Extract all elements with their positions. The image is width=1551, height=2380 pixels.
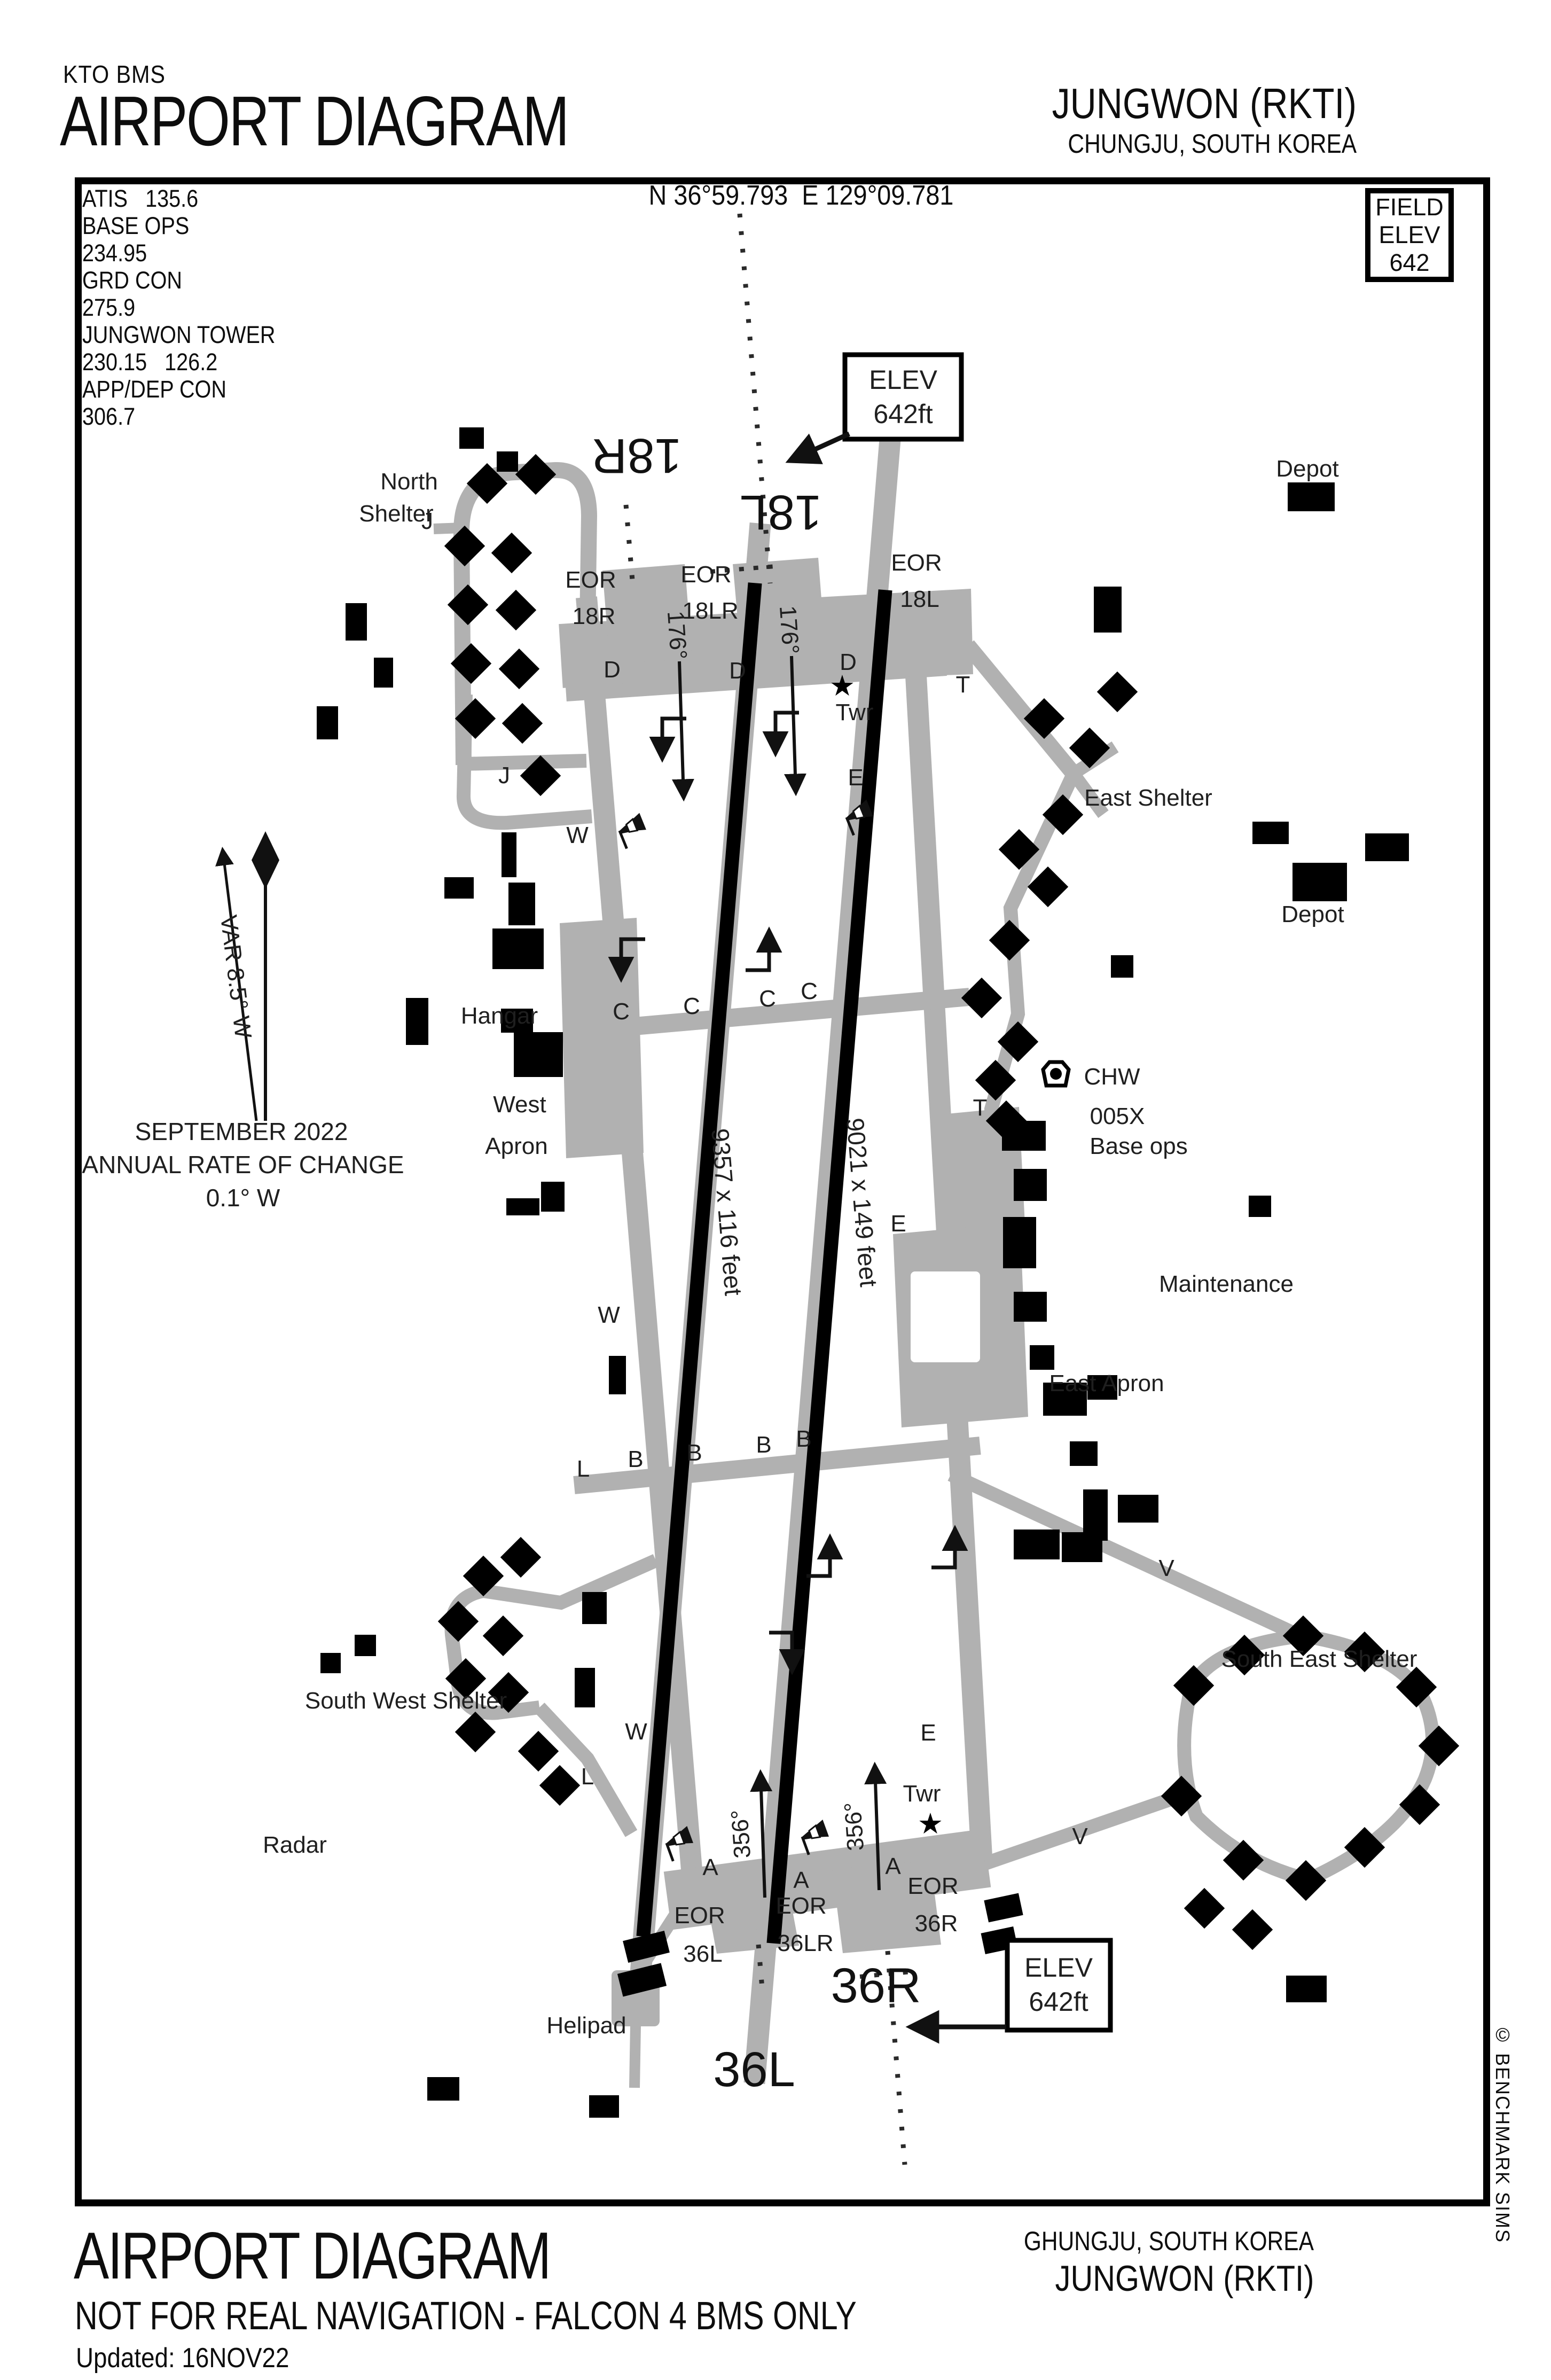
eor-18l-id: 18L xyxy=(900,586,939,612)
hangar-label: Hangar xyxy=(461,1003,538,1029)
west-apron-label: Apron xyxy=(485,1133,547,1159)
maintenance-label: Maintenance xyxy=(1159,1271,1294,1297)
taxiway-l: L xyxy=(577,1456,590,1482)
east-apron-label: East Apron xyxy=(1049,1370,1164,1396)
west-apron-label: West xyxy=(493,1091,546,1118)
taxiway-w: W xyxy=(625,1719,647,1745)
tower-star-icon: ★ xyxy=(829,670,855,702)
taxiway-w: W xyxy=(598,1302,620,1328)
eor-18lr: EOR xyxy=(680,561,731,588)
taxiway-c: C xyxy=(683,993,700,1019)
taxiway-b: B xyxy=(686,1440,702,1466)
elev-callout-line: ELEV xyxy=(1024,1953,1093,1983)
taxiway-e: E xyxy=(848,764,863,791)
south-east-shelter-label: South East Shelter xyxy=(1221,1646,1417,1672)
copyright-credit: © BENCHMARK SIMS xyxy=(1491,2024,1514,2243)
taxiway-e: E xyxy=(890,1211,906,1237)
runway-dimensions-east: 9021 x 149 feet xyxy=(841,1117,883,1289)
heading-356-east: 356° xyxy=(840,1801,869,1852)
runway-label-36l: 36L xyxy=(713,2042,795,2097)
tower-star-icon: ★ xyxy=(918,1808,943,1840)
taxiway-a: A xyxy=(885,1853,901,1879)
taxiway-v: V xyxy=(1072,1823,1088,1850)
footer-updated: Updated: 16NOV22 xyxy=(76,2342,289,2374)
taxiway-l: L xyxy=(581,1763,594,1790)
east-shelter-label: East Shelter xyxy=(1084,785,1212,811)
airport-map: ELEV 642ft ELEV 642ft VAR 8.5° W SEPTEMB… xyxy=(0,0,1551,2380)
variation-date: SEPTEMBER 2022 xyxy=(135,1118,348,1145)
windsock-icon xyxy=(799,1820,832,1855)
runway-label-18r: 18R xyxy=(592,428,682,483)
variation-label: VAR 8.5° W xyxy=(215,914,256,1040)
tower-label-south: Twr xyxy=(903,1781,941,1807)
eor-18r: EOR xyxy=(565,567,616,593)
eor-36r: EOR xyxy=(907,1873,958,1899)
elev-callout-line: 642ft xyxy=(873,399,933,429)
variation-rate: 0.1° W xyxy=(206,1184,280,1212)
tower-label-north: Twr xyxy=(836,699,874,725)
footer-airport-location: GHUNGJU, SOUTH KOREA xyxy=(1024,2226,1314,2257)
elev-callout-line: 642ft xyxy=(1029,1987,1088,2017)
heading-356-west: 356° xyxy=(726,1809,756,1859)
radar-label: Radar xyxy=(263,1832,327,1858)
eor-36l: EOR xyxy=(674,1902,725,1929)
magnetic-north-arrowhead xyxy=(252,831,279,889)
taxiway-w: W xyxy=(566,822,589,848)
tacan-id-label: CHW xyxy=(1084,1064,1140,1090)
depot-label-north: Depot xyxy=(1276,456,1338,482)
base-ops-label: Base ops xyxy=(1090,1133,1187,1159)
taxiway-c: C xyxy=(613,998,630,1025)
windsock-icon xyxy=(616,813,650,849)
footer-airport-name: JUNGWON (RKTI) xyxy=(1055,2258,1314,2299)
south-west-shelter-diamonds xyxy=(438,1537,580,1806)
footer-title: AIRPORT DIAGRAM xyxy=(74,2218,550,2294)
runway-label-36r: 36R xyxy=(831,1958,921,2013)
elev-callout-bottom: ELEV 642ft xyxy=(912,1940,1110,2030)
heading-176-east: 176° xyxy=(774,605,804,655)
variation-compass: VAR 8.5° W xyxy=(215,831,279,1121)
north-shelter-label: North xyxy=(380,469,438,495)
taxiway-a: A xyxy=(702,1854,718,1880)
taxiway-t: T xyxy=(956,672,970,698)
taxiway-d: D xyxy=(604,657,621,683)
elev-callout-line: ELEV xyxy=(869,365,938,395)
taxiway-e: E xyxy=(920,1720,936,1746)
airport-diagram-page: { "header": {"kicker": "KTO BMS", "title… xyxy=(0,0,1551,2380)
tacan-channel-label: 005X xyxy=(1090,1103,1145,1129)
south-west-shelter-label: South West Shelter xyxy=(305,1688,507,1714)
runway-label-18l: 18L xyxy=(740,485,822,540)
eor-36l-id: 36L xyxy=(683,1941,722,1967)
helipad-label: Helipad xyxy=(546,2012,626,2039)
taxiway-t: T xyxy=(973,1095,988,1121)
depot-label-east: Depot xyxy=(1281,901,1344,927)
eor-18l: EOR xyxy=(891,550,942,576)
depot-building-east xyxy=(1292,863,1347,901)
eor-18lr-id: 18LR xyxy=(682,598,738,624)
taxiway-b: B xyxy=(628,1446,643,1472)
taxiway-d: D xyxy=(729,658,746,684)
eor-36r-id: 36R xyxy=(915,1910,958,1937)
taxiway-v: V xyxy=(1158,1555,1174,1581)
taxiway-j: J xyxy=(498,762,510,789)
taxiway-c: C xyxy=(801,978,818,1004)
depot-building-north xyxy=(1288,482,1335,511)
eor-36lr-id: 36LR xyxy=(777,1930,833,1956)
eor-18r-id: 18R xyxy=(573,603,616,629)
tacan-icon xyxy=(1043,1062,1069,1086)
taxiway-a: A xyxy=(793,1867,809,1893)
taxiway-c: C xyxy=(759,986,776,1012)
footer-warning: NOT FOR REAL NAVIGATION - FALCON 4 BMS O… xyxy=(75,2293,857,2338)
north-shelter-label: Shelter xyxy=(359,501,433,527)
variation-note: ANNUAL RATE OF CHANGE xyxy=(82,1151,404,1179)
taxiway-b: B xyxy=(796,1426,811,1452)
eor-36lr: EOR xyxy=(775,1893,826,1919)
taxiway-b: B xyxy=(756,1432,771,1458)
elev-callout-top: ELEV 642ft xyxy=(792,355,961,460)
